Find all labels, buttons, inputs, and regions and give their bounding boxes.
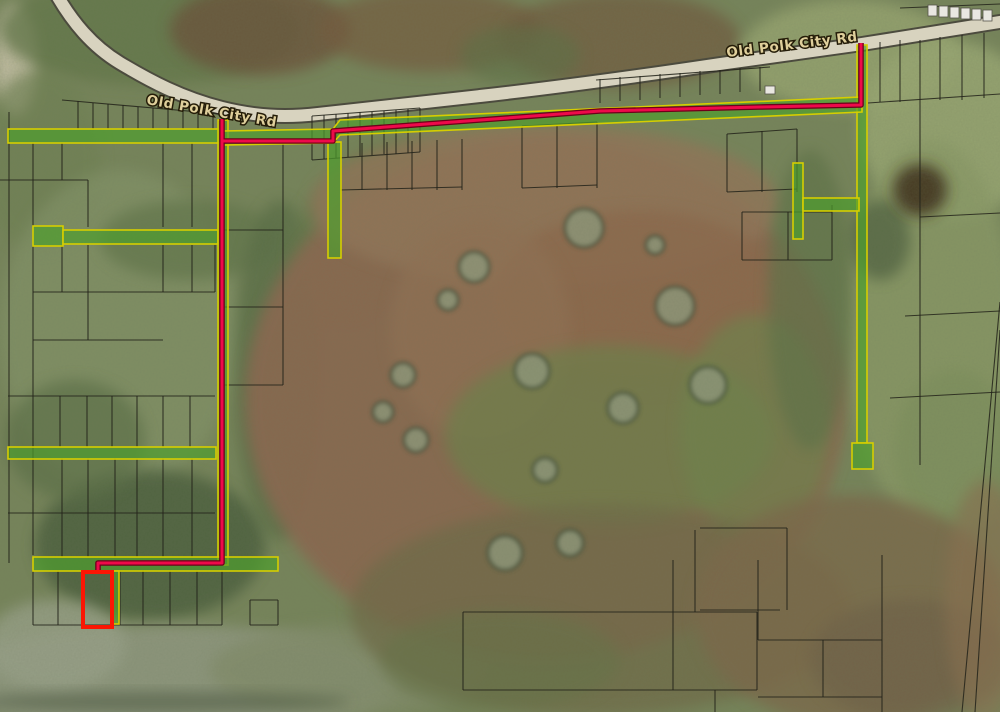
building-structure	[983, 10, 992, 21]
building-structure	[765, 86, 775, 94]
highlighted-easement-strip	[33, 226, 63, 246]
highlighted-easement-strip	[63, 230, 218, 244]
building-structure	[961, 8, 970, 19]
building-structure	[972, 9, 981, 20]
highlighted-easement-strip	[8, 129, 222, 143]
building-structure	[950, 7, 959, 18]
aerial-map-canvas[interactable]: Old Polk City Rd Old Polk City Rd	[0, 0, 1000, 712]
building-structure	[939, 6, 948, 17]
highlighted-easement-strip	[793, 163, 803, 239]
building-structure	[928, 5, 937, 16]
highlighted-easement-strip	[8, 447, 216, 459]
map-svg: Old Polk City Rd Old Polk City Rd	[0, 0, 1000, 712]
highlighted-easement-strip	[803, 198, 859, 211]
highlighted-easement-strip	[328, 142, 341, 258]
highlighted-easement-strip	[852, 443, 873, 469]
